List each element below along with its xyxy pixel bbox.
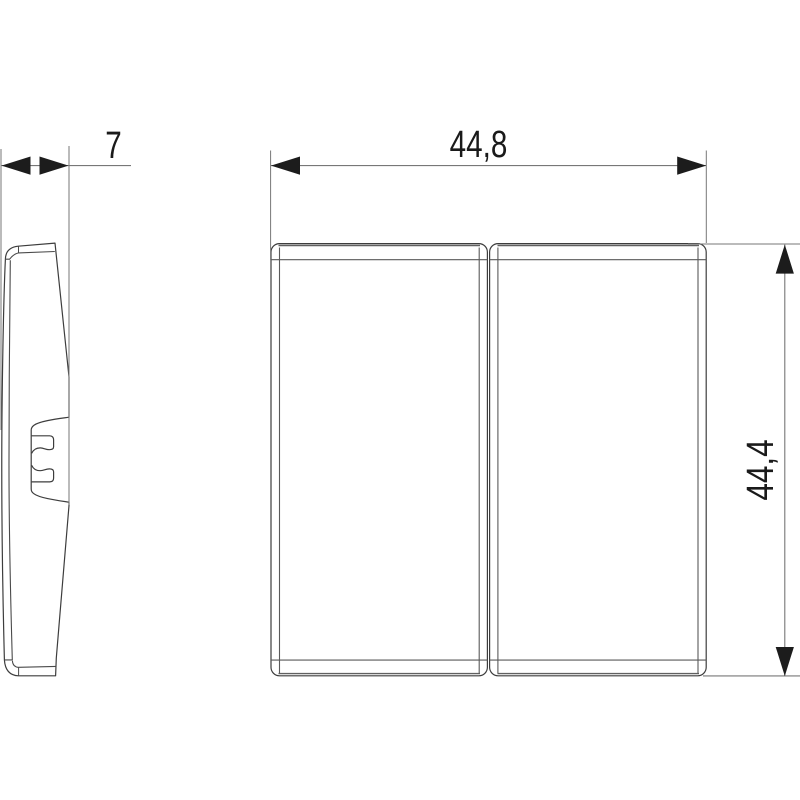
svg-text:7: 7	[105, 125, 121, 167]
svg-text:44,8: 44,8	[450, 124, 508, 166]
svg-text:44,4: 44,4	[739, 439, 781, 500]
